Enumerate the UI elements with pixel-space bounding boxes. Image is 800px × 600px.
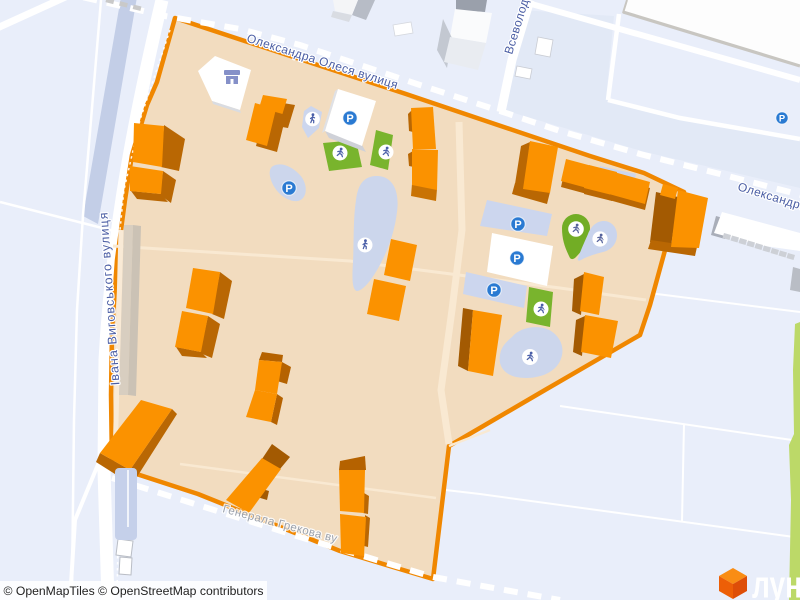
svg-text:лун: лун: [752, 565, 800, 600]
svg-text:© OpenMapTiles © OpenStreetMap: © OpenMapTiles © OpenStreetMap contribut…: [4, 584, 264, 598]
